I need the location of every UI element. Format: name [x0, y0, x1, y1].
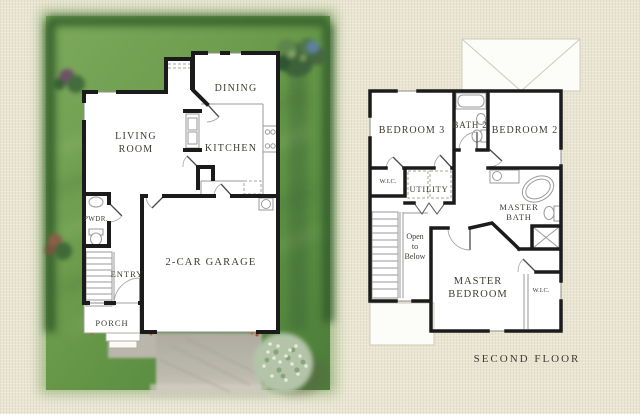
- living-room-label-line2: ROOM: [119, 144, 154, 155]
- hall-wic-label: W.I.C.: [380, 178, 397, 185]
- first-floor-footprint: [84, 53, 278, 332]
- toilet-bowl: [91, 233, 102, 245]
- master-bedroom-label-line2: BEDROOM: [448, 289, 508, 300]
- roof-gable: [462, 39, 580, 91]
- open-to-below-label-line2: to: [412, 242, 418, 251]
- porch-label: PORCH: [95, 318, 128, 328]
- powder-label: PWDR.: [84, 215, 108, 223]
- floor-plan-canvas: LIVING ROOM DINING KITCHEN PWDR. ENTRY 2…: [0, 0, 640, 414]
- stove: [263, 126, 277, 152]
- bedroom3-label: BEDROOM 3: [379, 125, 446, 136]
- driveway-apron: [150, 384, 268, 398]
- floor-plan-sheet: LIVING ROOM DINING KITCHEN PWDR. ENTRY 2…: [0, 0, 640, 414]
- open-to-below-label-line3: Below: [405, 252, 426, 261]
- master-bedroom-label-line1: MASTER: [454, 276, 503, 287]
- powder-sink: [89, 197, 103, 207]
- master-bath-label-line2: BATH: [506, 212, 531, 222]
- porch-step-2: [109, 341, 137, 348]
- garage-label: 2-CAR GARAGE: [165, 257, 256, 268]
- utility-label: UTILITY: [409, 184, 448, 194]
- master-bath-label-line1: MASTER: [499, 202, 538, 212]
- bedroom2-label: BEDROOM 2: [492, 125, 559, 136]
- master-wic-label: W.I.C.: [533, 287, 550, 294]
- lower-roof-section: [370, 303, 434, 345]
- master-toilet-bowl: [544, 207, 554, 220]
- dining-label: DINING: [215, 83, 258, 94]
- second-floor-plan: BEDROOM 3 BATH 2 BEDROOM 2 W.I.C. UTILIT…: [370, 39, 580, 365]
- living-room-label-line1: LIVING: [115, 131, 157, 142]
- entry-label: ENTRY: [111, 269, 144, 279]
- kitchen-label: KITCHEN: [205, 143, 257, 154]
- porch-step-1: [106, 333, 140, 341]
- second-floor-title: SECOND FLOOR: [474, 353, 581, 365]
- bath2-label: BATH 2: [452, 120, 487, 130]
- first-floor-plan: LIVING ROOM DINING KITCHEN PWDR. ENTRY 2…: [84, 53, 278, 348]
- open-to-below-label-line1: Open: [406, 232, 423, 241]
